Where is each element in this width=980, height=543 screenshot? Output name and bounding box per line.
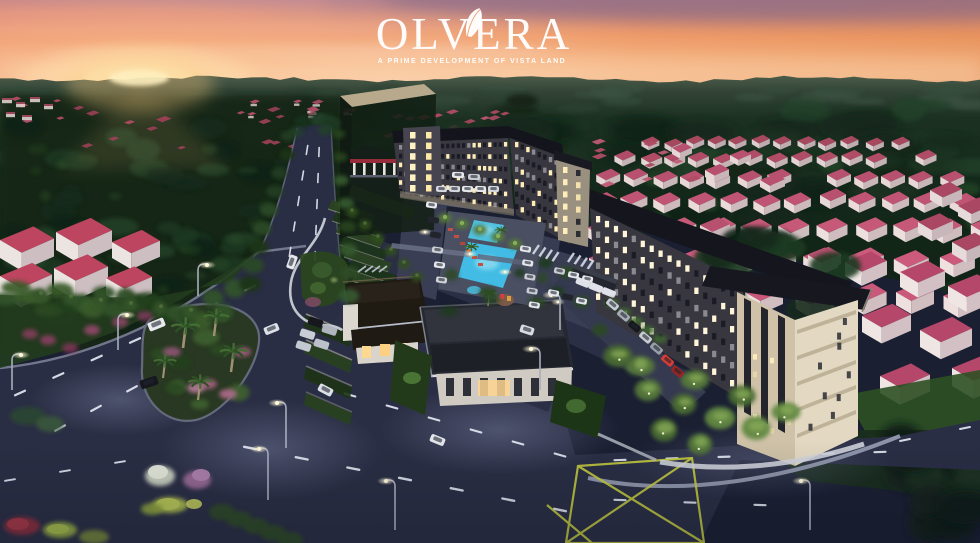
svg-text:A PRIME DEVELOPMENT OF VISTA L: A PRIME DEVELOPMENT OF VISTA LAND bbox=[378, 58, 566, 65]
